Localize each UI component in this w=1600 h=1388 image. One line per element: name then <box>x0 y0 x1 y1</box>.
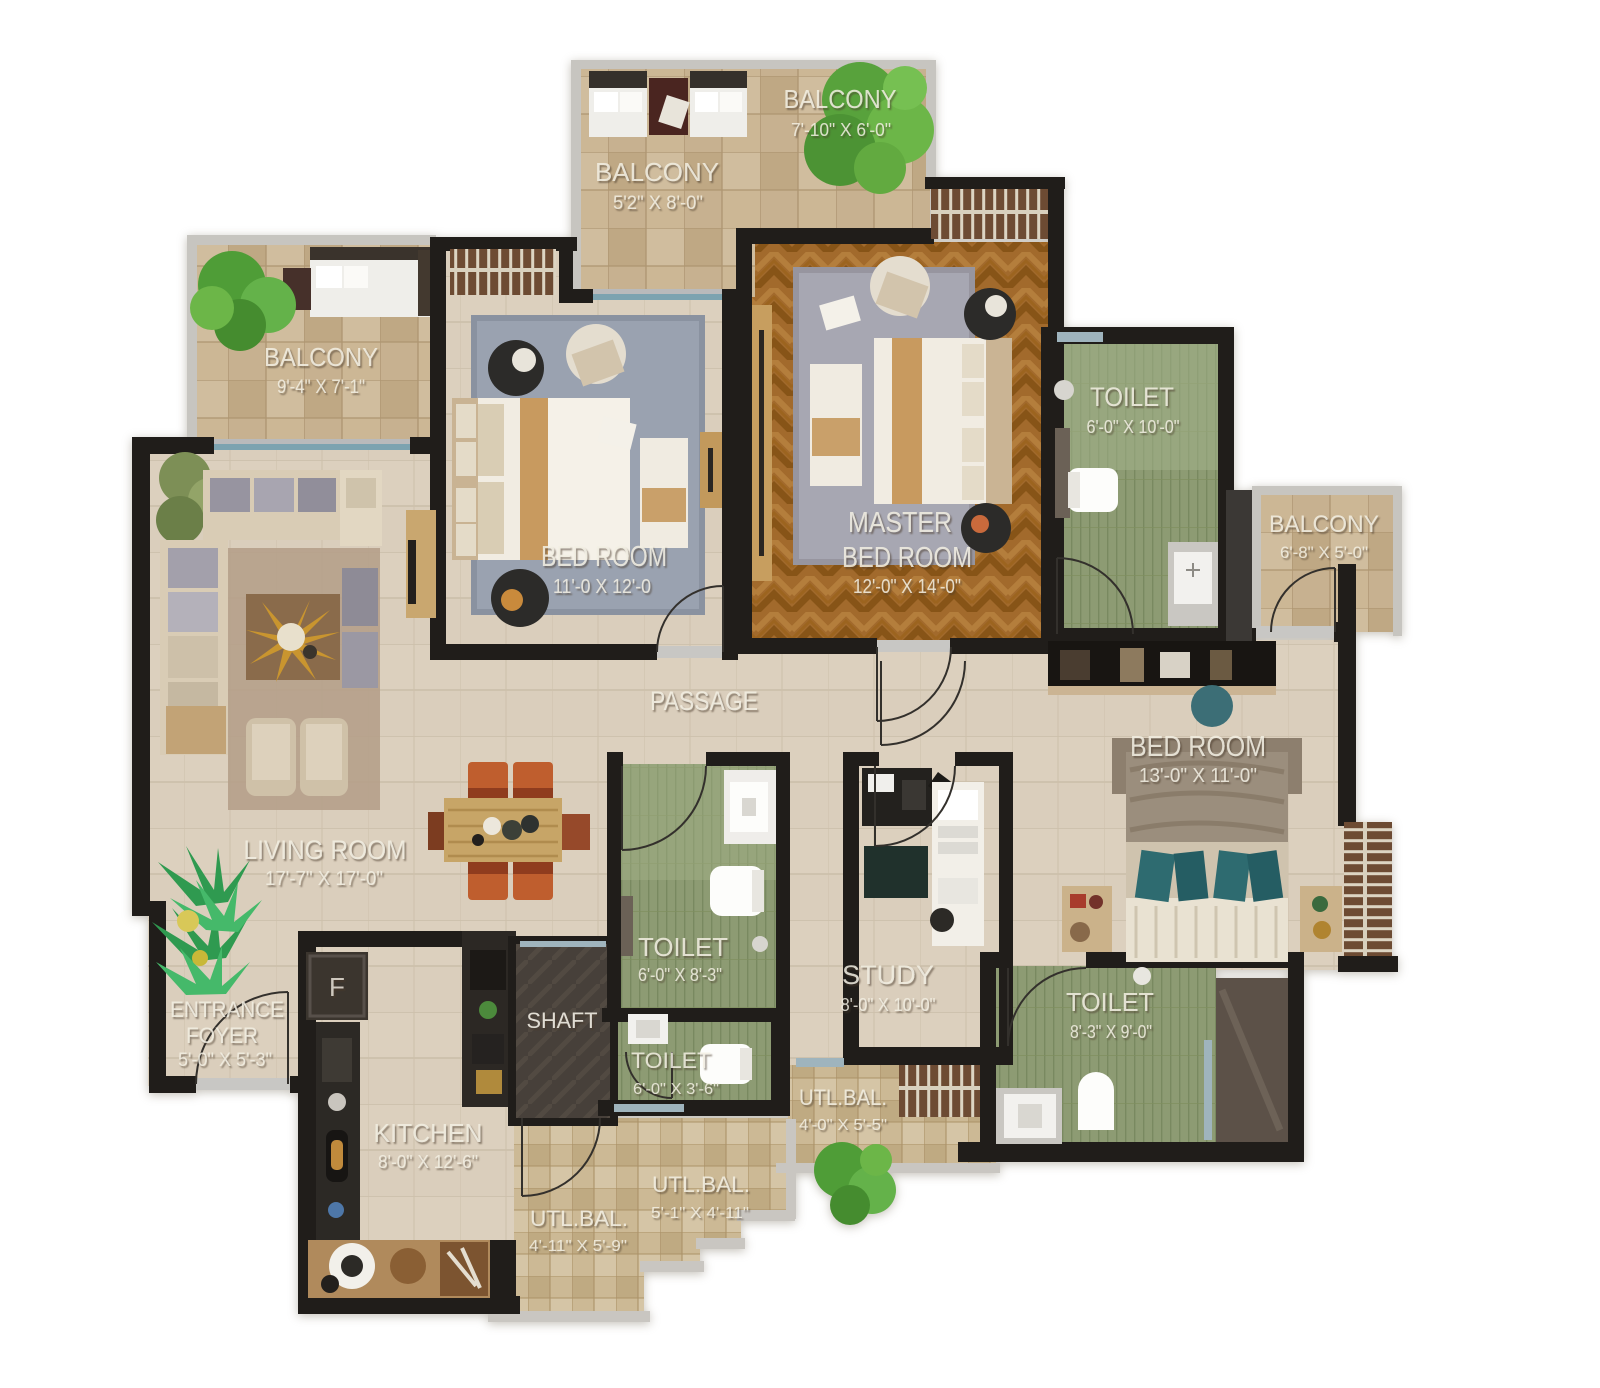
svg-text:ENTRANCE: ENTRANCE <box>170 997 284 1022</box>
svg-text:4'-0" X 5'-5": 4'-0" X 5'-5" <box>799 1117 887 1134</box>
svg-text:11'-0 X 12'-0: 11'-0 X 12'-0 <box>553 576 651 598</box>
svg-text:F: F <box>329 972 345 1002</box>
svg-text:8'-0" X 10'-0": 8'-0" X 10'-0" <box>841 995 936 1015</box>
svg-text:STUDY: STUDY <box>842 960 934 990</box>
svg-text:LIVING ROOM: LIVING ROOM <box>244 835 407 865</box>
svg-text:4'-11" X 5'-9": 4'-11" X 5'-9" <box>529 1238 627 1255</box>
svg-text:UTL.BAL.: UTL.BAL. <box>652 1172 750 1197</box>
svg-text:5'-0" X 5'-3": 5'-0" X 5'-3" <box>178 1050 272 1071</box>
svg-text:TOILET: TOILET <box>1066 987 1154 1017</box>
svg-text:TOILET: TOILET <box>638 932 728 962</box>
svg-text:BALCONY: BALCONY <box>264 342 378 372</box>
svg-text:TOILET: TOILET <box>1090 382 1174 412</box>
svg-text:8'-0" X 12'-6": 8'-0" X 12'-6" <box>378 1152 478 1172</box>
svg-text:6'-0" X 3'-6": 6'-0" X 3'-6" <box>633 1081 719 1098</box>
svg-text:12'-0" X 14'-0": 12'-0" X 14'-0" <box>853 576 961 598</box>
svg-text:UTL.BAL.: UTL.BAL. <box>799 1085 887 1110</box>
svg-text:5'2" X 8'-0": 5'2" X 8'-0" <box>613 193 703 214</box>
svg-text:BALCONY: BALCONY <box>595 157 719 187</box>
svg-text:BED ROOM: BED ROOM <box>842 542 972 574</box>
svg-text:BED ROOM: BED ROOM <box>1130 731 1266 763</box>
svg-text:PASSAGE: PASSAGE <box>650 686 758 716</box>
svg-text:BALCONY: BALCONY <box>1269 511 1379 538</box>
svg-text:KITCHEN: KITCHEN <box>374 1118 483 1148</box>
svg-text:8'-3" X 9'-0": 8'-3" X 9'-0" <box>1070 1022 1152 1042</box>
svg-text:MASTER: MASTER <box>848 507 952 539</box>
svg-text:BALCONY: BALCONY <box>784 84 897 114</box>
svg-text:TOILET: TOILET <box>631 1048 711 1073</box>
svg-text:6'-0" X 8'-3": 6'-0" X 8'-3" <box>638 965 722 985</box>
svg-text:7'-10" X 6'-0": 7'-10" X 6'-0" <box>791 120 891 140</box>
svg-text:SHAFT: SHAFT <box>527 1008 598 1033</box>
svg-text:9'-4" X 7'-1": 9'-4" X 7'-1" <box>277 377 365 398</box>
svg-text:13'-0" X 11'-0": 13'-0" X 11'-0" <box>1139 765 1257 787</box>
svg-text:FOYER: FOYER <box>186 1023 258 1048</box>
svg-text:17'-7" X 17'-0": 17'-7" X 17'-0" <box>265 868 383 890</box>
svg-text:5'-1" X 4'-11": 5'-1" X 4'-11" <box>651 1205 749 1222</box>
svg-text:6'-8" X 5'-0": 6'-8" X 5'-0" <box>1280 543 1368 562</box>
svg-text:6'-0" X 10'-0": 6'-0" X 10'-0" <box>1087 417 1180 437</box>
svg-text:UTL.BAL.: UTL.BAL. <box>530 1206 628 1231</box>
svg-text:BED ROOM: BED ROOM <box>541 541 667 573</box>
